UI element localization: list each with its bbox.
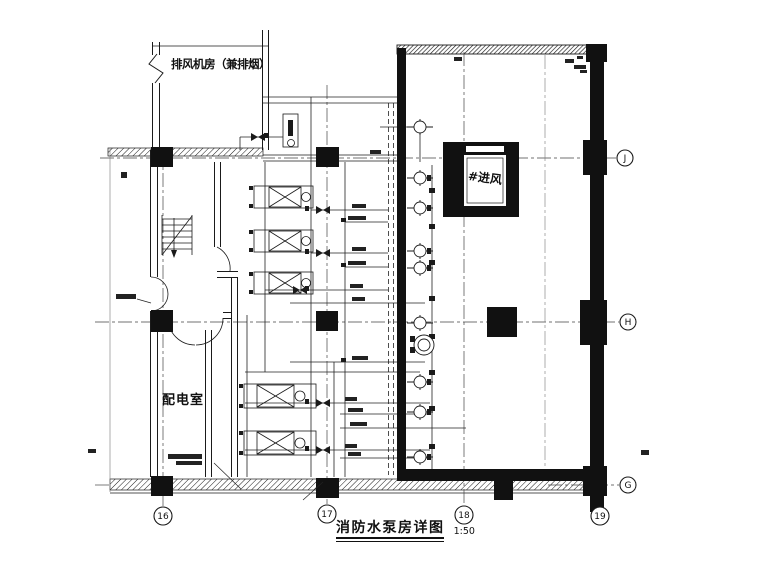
- title-underline-thick: [336, 537, 444, 539]
- cad-drawing-canvas: 16 17 18 19 J H G 排风机房（兼排烟） 配电室 #进风 消防水泵…: [0, 0, 760, 570]
- drawing-title: 消防水泵房详图: [336, 517, 445, 537]
- column: [316, 311, 338, 331]
- grid-bubbles: 16 17 18 19 J H G: [154, 150, 636, 525]
- svg-text:17: 17: [321, 510, 332, 520]
- wall-fixture: [283, 114, 298, 147]
- flow-meter: [410, 335, 434, 355]
- pump-unit: [239, 431, 316, 455]
- fire-pumps: [239, 186, 316, 455]
- valve-symbols: [251, 133, 330, 454]
- column: [316, 478, 339, 498]
- grid-lines: [95, 52, 619, 506]
- column: [494, 477, 513, 500]
- pump-unit: [249, 230, 313, 252]
- pump-unit: [239, 384, 316, 408]
- power-distribution-room-label: 配电室: [162, 389, 204, 408]
- pump-unit: [249, 186, 313, 208]
- drawing-linework: 16 17 18 19 J H G: [0, 0, 760, 570]
- wall-valve-circles: [407, 119, 434, 465]
- svg-text:19: 19: [594, 512, 606, 522]
- drawing-title-block: 消防水泵房详图 1:50: [336, 517, 536, 537]
- svg-text:G: G: [625, 481, 632, 491]
- svg-text:H: H: [625, 318, 632, 328]
- column: [316, 147, 339, 167]
- column: [151, 310, 173, 332]
- title-underline-thin: [336, 541, 444, 542]
- stairs: [162, 215, 192, 258]
- exhaust-fan-room-label: 排风机房（兼排烟）: [171, 56, 270, 72]
- column: [151, 476, 173, 496]
- svg-text:16: 16: [157, 512, 169, 522]
- column: [487, 307, 517, 337]
- svg-text:J: J: [623, 154, 627, 164]
- drawing-scale: 1:50: [454, 526, 475, 537]
- column: [151, 147, 173, 167]
